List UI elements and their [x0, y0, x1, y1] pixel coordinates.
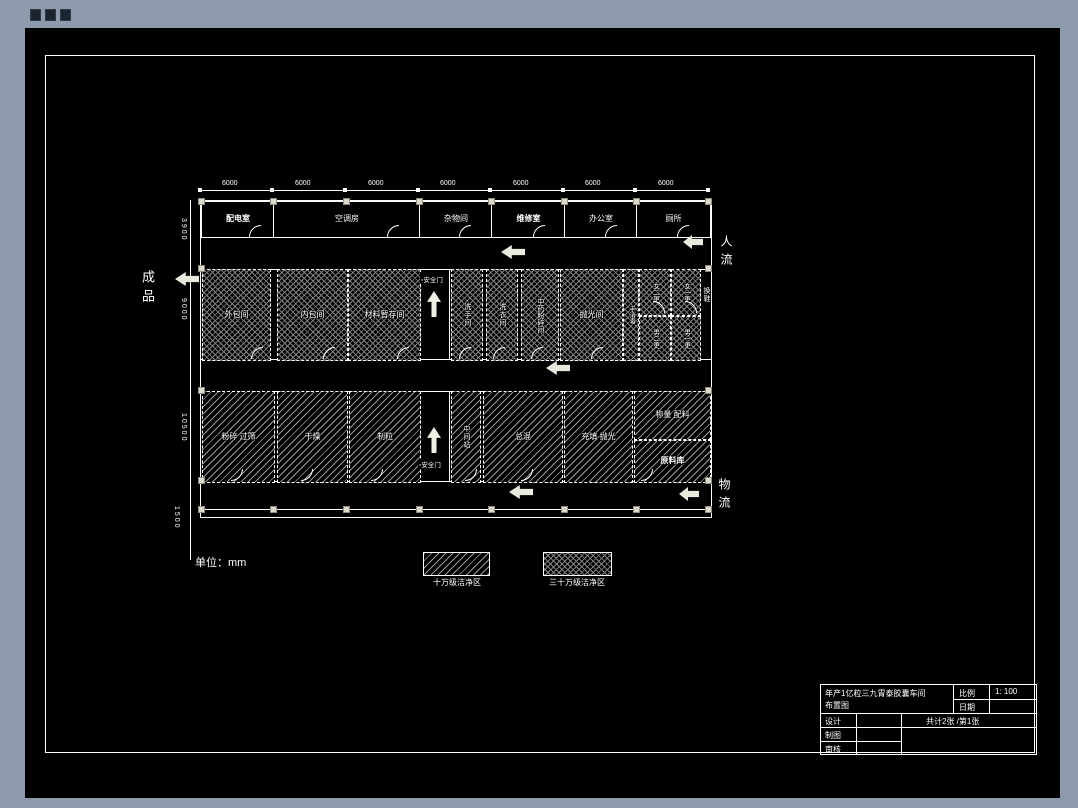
window-control-icon: [45, 9, 56, 21]
legend-label-class100k: 十万级洁净区: [433, 577, 481, 588]
drawing-title-line1: 年产1亿粒三九胃泰胶囊车间: [825, 688, 951, 699]
room-weighing-dispensing: 称量 配料: [634, 391, 711, 440]
column: [198, 387, 205, 394]
room-men-2nd-change: 男二更: [639, 316, 671, 361]
room-power-distribution: 配电室: [201, 201, 275, 238]
column: [561, 198, 568, 205]
room-hand-sanitize: 手消毒: [623, 269, 639, 361]
dim-tick: [270, 188, 274, 192]
dimension-line-left: [190, 200, 191, 560]
dim-left-1: 3900: [180, 218, 187, 242]
column: [705, 198, 712, 205]
column: [561, 506, 568, 513]
dim-tick: [561, 188, 565, 192]
column: [416, 506, 423, 513]
window-control-icon: [30, 9, 41, 21]
safety-door-label-top: ▫安全门: [420, 274, 444, 284]
room-men-1st-change: 男一更: [671, 316, 701, 361]
corridor-wall: [449, 391, 450, 481]
dim-tick: [198, 188, 202, 192]
room-shoe-change: 换鞋: [700, 286, 712, 304]
sheet-info: 共计2张 /第1张: [926, 716, 979, 727]
column: [198, 265, 205, 272]
dim-top-4: 6000: [440, 180, 456, 187]
dim-top-7: 6000: [658, 180, 674, 187]
exit-arrow-up-bottom: [427, 427, 441, 453]
column: [198, 506, 205, 513]
column: [705, 265, 712, 272]
flow-label-material: 物流: [716, 478, 733, 514]
dim-top-2: 6000: [295, 180, 311, 187]
room-maintenance: 维修室: [491, 201, 566, 238]
column: [705, 387, 712, 394]
safety-door-label-bottom: ▫安全门: [418, 459, 442, 469]
column: [705, 477, 712, 484]
reviewer-label: 审核: [825, 744, 841, 755]
exit-arrow-up-top: [427, 291, 441, 317]
tb-line: [821, 713, 1036, 714]
column: [705, 506, 712, 513]
room-polishing: 抛光间: [560, 269, 623, 361]
column: [633, 506, 640, 513]
corridor-arrow-bottom: [509, 485, 533, 499]
unit-note: 单位：mm: [195, 554, 246, 570]
drawing-title-line2: 布置图: [825, 700, 951, 711]
flow-label-people: 人流: [718, 235, 735, 271]
room-toilet: 厕所: [636, 201, 711, 238]
building-outline: 配电室 空调房 杂物间 维修室 办公室 厕所 外包间 内包间 材料暂存间 洗手间…: [200, 200, 712, 518]
room-sundries: 杂物间: [419, 201, 493, 238]
legend-swatch-class100k: [423, 552, 490, 576]
dim-top-1: 6000: [222, 180, 238, 187]
room-filling-polishing: 充填 抛光: [564, 391, 633, 483]
date-label: 日期: [959, 702, 975, 713]
column: [343, 198, 350, 205]
scale-value: 1: 100: [995, 687, 1017, 696]
column: [198, 198, 205, 205]
window-control-icon: [60, 9, 71, 21]
corridor-arrow-middle: [546, 361, 570, 375]
column: [488, 198, 495, 205]
dim-tick: [416, 188, 420, 192]
column: [270, 198, 277, 205]
dim-top-6: 6000: [585, 180, 601, 187]
title-block: 年产1亿粒三九胃泰胶囊车间 布置图 比例 1: 100 日期 设计 制图 审核 …: [820, 684, 1037, 755]
room-office: 办公室: [564, 201, 638, 238]
tb-line: [821, 741, 901, 742]
designer-label: 设计: [825, 716, 841, 727]
dim-left-3: 10500: [180, 413, 187, 442]
column: [488, 506, 495, 513]
room-material-staging: 材料暂存间: [348, 269, 421, 361]
dim-left-4: 1500: [173, 506, 180, 530]
dim-left-2: 9000: [180, 298, 187, 322]
column: [343, 506, 350, 513]
drafter-label: 制图: [825, 730, 841, 741]
screenshot-root: { "rooms": { "top": ["配电室", "空调房", "杂物间"…: [0, 0, 1078, 808]
legend-label-class300k: 三十万级洁净区: [549, 577, 605, 588]
column: [416, 198, 423, 205]
room-inner-packaging: 内包间: [277, 269, 348, 361]
tb-line: [953, 699, 1036, 700]
corridor-arrow-top: [501, 245, 525, 259]
dim-tick: [343, 188, 347, 192]
tb-line: [901, 713, 902, 754]
legend-swatch-class300k: [543, 552, 612, 576]
cad-canvas[interactable]: 6000 6000 6000 6000 6000 6000 6000 3900 …: [25, 28, 1060, 798]
dim-tick: [633, 188, 637, 192]
tb-line: [821, 727, 1036, 728]
dim-tick: [706, 188, 710, 192]
column: [633, 198, 640, 205]
room-granulation: 制粒: [349, 391, 421, 483]
flow-label-finished-goods: 成品: [138, 270, 157, 308]
scale-label: 比例: [959, 688, 975, 699]
dim-top-3: 6000: [368, 180, 384, 187]
column: [270, 506, 277, 513]
dim-tick: [488, 188, 492, 192]
column: [198, 477, 205, 484]
dim-top-5: 6000: [513, 180, 529, 187]
tb-line: [856, 713, 857, 754]
corridor-wall: [449, 269, 450, 359]
corridor-arrow-material-entry: [679, 487, 699, 501]
